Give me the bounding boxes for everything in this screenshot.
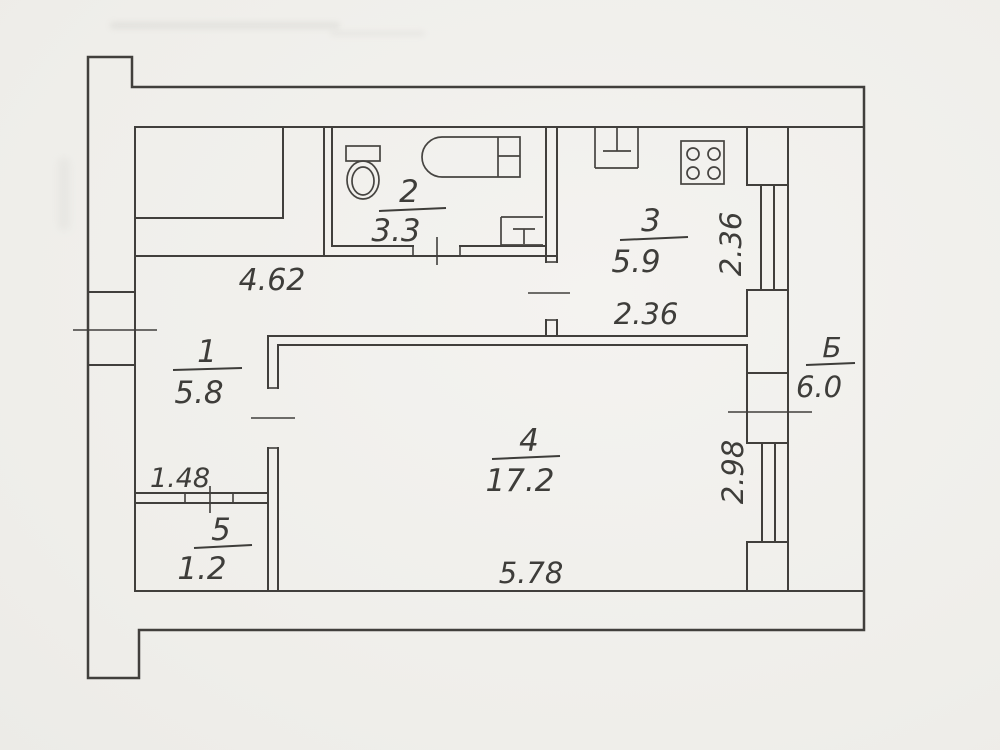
kitchen-sink-icon — [595, 128, 638, 168]
window-icon — [73, 292, 157, 365]
room-area: 5.8 — [174, 375, 223, 411]
floor-plan-drawing: 1 5.8 2 3.3 3 5.9 4 17.2 5 1.2 Б 6.0 — [0, 0, 1000, 750]
stove-icon — [681, 141, 724, 184]
room-area: 17.2 — [485, 463, 554, 499]
inner-walls — [135, 127, 864, 591]
bathtub-icon — [422, 137, 520, 177]
room-area: 6.0 — [796, 370, 842, 404]
room-number: 2 — [399, 174, 419, 210]
room-label-hallway: 1 5.8 — [173, 334, 242, 411]
living-room-window-icon — [747, 443, 788, 542]
dimension-corridor-length: 4.62 — [239, 263, 306, 298]
dimension-living-room-length: 5.78 — [499, 556, 564, 590]
dimension-living-room-window-width: 2.98 — [716, 440, 750, 505]
dimension-kitchen-window-width: 2.36 — [714, 212, 748, 277]
room-area: 3.3 — [371, 213, 420, 249]
scan-artifact — [330, 31, 425, 36]
toilet-icon — [346, 146, 380, 199]
room-number: 1 — [197, 334, 217, 370]
room-number: Б — [822, 331, 841, 364]
scan-artifact — [58, 158, 70, 230]
room-label-living-room: 4 17.2 — [485, 423, 560, 499]
dimension-storage-width: 1.48 — [150, 463, 210, 494]
room-area: 5.9 — [611, 244, 660, 280]
scan-artifact — [110, 22, 340, 29]
dimension-kitchen-width: 2.36 — [614, 297, 679, 331]
room-number: 5 — [211, 512, 231, 548]
balcony-wall — [728, 127, 812, 591]
room-label-storage: 5 1.2 — [177, 512, 252, 587]
washbasin-icon — [501, 217, 543, 245]
room-number: 4 — [519, 423, 539, 459]
room-label-kitchen: 3 5.9 — [611, 203, 688, 280]
room-label-bathroom: 2 3.3 — [371, 174, 446, 249]
closet-outline — [135, 127, 283, 218]
kitchen-window-icon — [747, 185, 788, 290]
floor-plan-scan: 1 5.8 2 3.3 3 5.9 4 17.2 5 1.2 Б 6.0 — [0, 0, 1000, 750]
room-label-balcony: Б 6.0 — [796, 331, 855, 404]
room-area: 1.2 — [177, 551, 226, 587]
room-number: 3 — [641, 203, 661, 239]
